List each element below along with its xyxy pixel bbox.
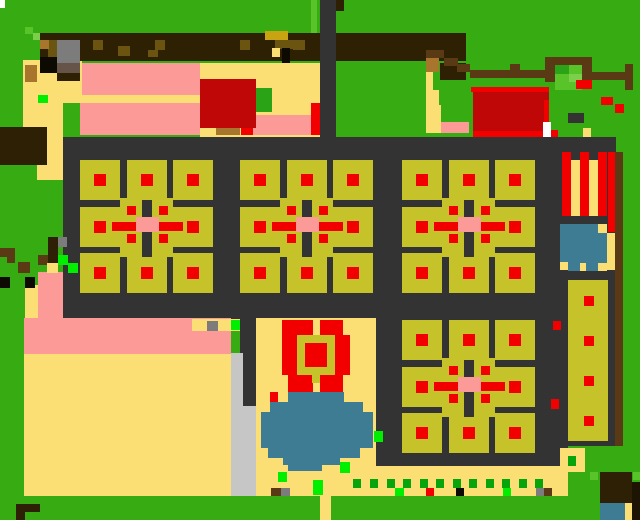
crop-dot xyxy=(535,479,543,488)
stone-block xyxy=(57,40,80,63)
market-stall-doors[interactable] xyxy=(584,416,594,426)
red-building-west-door[interactable] xyxy=(256,88,272,112)
grass-highlight-pale xyxy=(33,33,40,40)
sprout xyxy=(313,480,323,495)
tree-row-spot xyxy=(240,40,250,50)
pool-sand-edge xyxy=(560,262,568,270)
tree-row-spot xyxy=(293,40,305,50)
yard-red-dots xyxy=(601,97,613,105)
road[interactable] xyxy=(320,0,336,140)
tree-row-spot xyxy=(48,40,57,57)
crop-dot xyxy=(387,479,395,488)
road-red-marker xyxy=(553,321,561,330)
plot-cluster-4-center-dot xyxy=(481,394,490,403)
tree-branch-shadow xyxy=(0,277,10,288)
plot-cluster-2-door[interactable] xyxy=(347,174,359,186)
pool[interactable] xyxy=(568,263,580,271)
plot-cluster-2-center-path[interactable] xyxy=(302,232,312,257)
plot-cluster-3-door[interactable] xyxy=(416,221,428,233)
plot-cluster-3-door[interactable] xyxy=(509,174,521,186)
sprout xyxy=(58,255,68,265)
tree-row-sand-pixel xyxy=(272,48,280,57)
pool-sand-edge xyxy=(580,263,586,271)
plot-cluster-4-center-path[interactable] xyxy=(464,392,474,417)
awning-red-stripe[interactable] xyxy=(580,152,589,216)
plot-cluster-4-center-path[interactable] xyxy=(464,360,474,377)
plot-cluster-3-center-dash xyxy=(481,222,505,231)
red-building-trim xyxy=(241,128,253,135)
plot-cluster-2-door[interactable] xyxy=(301,174,313,186)
crop-dot xyxy=(453,479,461,488)
fence xyxy=(545,65,555,82)
sand-terrace xyxy=(426,90,439,105)
yard-red-dots xyxy=(615,104,624,113)
plot-cluster-4-door[interactable] xyxy=(416,381,428,393)
plot-cluster-1-door[interactable] xyxy=(141,267,153,279)
red-building-west[interactable] xyxy=(200,79,256,128)
tree-branch xyxy=(18,262,30,273)
pool[interactable] xyxy=(586,263,598,271)
corner-pixel xyxy=(0,0,5,8)
sprout xyxy=(68,263,78,273)
crop-dot xyxy=(436,479,444,488)
plot-cluster-1-center-path[interactable] xyxy=(142,200,152,217)
red-building-east[interactable] xyxy=(473,88,549,133)
plot-cluster-2-door[interactable] xyxy=(254,267,266,279)
shrine-ring[interactable] xyxy=(270,392,278,402)
dock-water xyxy=(600,503,625,520)
crop-dot xyxy=(502,479,510,488)
tree-row xyxy=(336,0,344,11)
plot-cluster-1-center-dot xyxy=(159,206,168,215)
wood-structure-dark xyxy=(632,482,640,520)
crop-dot xyxy=(370,479,378,488)
plot-cluster-2-door[interactable] xyxy=(301,267,313,279)
plot-cluster-4-center-pad xyxy=(458,377,481,392)
plot-cluster-3-center-pad xyxy=(458,217,481,232)
plot-cluster-1-center-dot xyxy=(127,234,136,243)
plot-cluster-1-center-pad xyxy=(136,217,159,232)
plot-cluster-3-door[interactable] xyxy=(463,267,475,279)
wood-structure xyxy=(0,127,47,165)
sand-terrace xyxy=(426,105,441,133)
tree-trunk xyxy=(48,237,58,263)
plot-cluster-3-center-dot xyxy=(449,206,458,215)
shrine-ring[interactable] xyxy=(320,320,343,335)
fence xyxy=(625,64,633,90)
boardwalk[interactable] xyxy=(615,152,623,446)
plot-cluster-1-door[interactable] xyxy=(141,174,153,186)
crop-dot xyxy=(469,479,477,488)
fence xyxy=(470,70,545,78)
plot-cluster-4-center-dash xyxy=(434,382,458,391)
plot-cluster-1-center-path[interactable] xyxy=(142,232,152,257)
market-stall-doors[interactable] xyxy=(584,336,594,346)
wood-structure xyxy=(16,512,25,520)
tree-row-shadow xyxy=(40,57,57,73)
sprout xyxy=(340,462,350,473)
pink-plaza xyxy=(38,272,63,318)
plot-cluster-2-center-dot xyxy=(287,234,296,243)
awning-red-stripe[interactable] xyxy=(598,152,607,216)
plaza-gray-pixel xyxy=(536,488,544,496)
yard-gray-slab xyxy=(568,113,584,123)
crop-dot xyxy=(420,479,428,488)
plot-cluster-2-center-dash xyxy=(319,222,343,231)
plot-cluster-4-door[interactable] xyxy=(416,334,428,346)
crop-dot xyxy=(353,479,361,488)
plot-cluster-4-center-dot xyxy=(449,394,458,403)
shrine-ring[interactable] xyxy=(320,375,343,392)
dirt-bits xyxy=(25,65,37,82)
plot-cluster-1-center-dash xyxy=(112,222,136,231)
stone-path[interactable] xyxy=(243,406,256,496)
pond[interactable] xyxy=(288,392,344,402)
pen-red-crate[interactable] xyxy=(576,80,592,89)
red-building-trim xyxy=(311,103,320,135)
fence xyxy=(444,58,458,66)
tree-row-spot xyxy=(148,50,158,57)
pond[interactable] xyxy=(261,412,373,448)
sprout-upper xyxy=(38,95,48,103)
yard-sand-pixel xyxy=(583,128,591,137)
plot-cluster-4-center-dash xyxy=(481,382,505,391)
pool-sand-edge xyxy=(607,233,615,270)
branch-sand-pixel xyxy=(47,263,58,273)
plot-cluster-3-center-path[interactable] xyxy=(464,232,474,257)
red-building-trim xyxy=(544,100,549,122)
tree-row-gold xyxy=(265,31,288,40)
awning-yellow-stripe[interactable] xyxy=(589,160,598,216)
plot-cluster-2-center-dot xyxy=(319,234,328,243)
plot-cluster-2-center-pad xyxy=(296,217,319,232)
pond[interactable] xyxy=(283,458,340,465)
plot-cluster-2-door[interactable] xyxy=(347,221,359,233)
plot-cluster-4-door[interactable] xyxy=(416,427,428,439)
fence xyxy=(457,64,470,72)
fence xyxy=(582,65,592,80)
plaza-gray-pixel xyxy=(207,321,218,331)
pink-terrace xyxy=(82,63,200,95)
plot-cluster-2-center-dot xyxy=(287,206,296,215)
sprout xyxy=(231,320,240,330)
tree-branch-shadow xyxy=(25,277,35,288)
crop-dot xyxy=(403,479,411,488)
plot-cluster-2-door[interactable] xyxy=(254,221,266,233)
ground-red-pixel xyxy=(426,488,434,496)
plot-cluster-2-center-dash xyxy=(272,222,296,231)
plot-cluster-2-door[interactable] xyxy=(347,267,359,279)
plot-cluster-1-center-dash xyxy=(159,222,183,231)
plot-cluster-1-center-dot xyxy=(127,206,136,215)
fence xyxy=(510,64,520,72)
plot-cluster-1-door[interactable] xyxy=(187,221,199,233)
tree-row-spot xyxy=(118,46,130,56)
plot-cluster-1-door[interactable] xyxy=(94,267,106,279)
wood-structure xyxy=(600,472,632,503)
grass-highlight xyxy=(25,27,33,34)
fence xyxy=(545,57,592,65)
tree-row-shadow xyxy=(282,48,290,63)
plot-cluster-3-center-dot xyxy=(449,234,458,243)
dirt-bits xyxy=(40,40,49,49)
crop-dot xyxy=(486,479,494,488)
awning-red-stripe[interactable] xyxy=(562,152,571,216)
plot-cluster-1-door[interactable] xyxy=(187,174,199,186)
shrine-ring[interactable] xyxy=(288,375,313,392)
pond[interactable] xyxy=(270,402,363,412)
pink-terrace xyxy=(441,122,469,133)
plot-cluster-4-door[interactable] xyxy=(463,334,475,346)
plot-cluster-4-center-dot xyxy=(449,366,458,375)
plot-cluster-2-center-dot xyxy=(319,206,328,215)
sprout xyxy=(374,431,383,442)
pink-terrace xyxy=(80,103,200,135)
ground-black-pixel xyxy=(456,488,464,496)
plot-cluster-3-door[interactable] xyxy=(463,174,475,186)
sand-terrace xyxy=(426,72,433,90)
pool-sand-edge xyxy=(598,263,607,271)
ground-brown-pixel xyxy=(544,488,552,496)
sand-terrace xyxy=(23,94,200,103)
market-stall-doors[interactable] xyxy=(584,376,594,386)
red-building-trim xyxy=(471,87,549,92)
dirt-bits xyxy=(426,57,439,72)
plot-cluster-3-door[interactable] xyxy=(416,267,428,279)
sand-path-gap xyxy=(320,496,331,520)
awning-yellow-stripe[interactable] xyxy=(571,160,580,216)
crop-dot xyxy=(568,456,576,466)
plot-cluster-3-center-dot xyxy=(481,234,490,243)
plot-cluster-3-center-dash xyxy=(434,222,458,231)
plot-cluster-4-door[interactable] xyxy=(509,427,521,439)
pond[interactable] xyxy=(268,448,360,458)
tree-row-spot xyxy=(93,40,103,50)
crop-dot xyxy=(519,479,527,488)
plot-cluster-3-door[interactable] xyxy=(509,221,521,233)
plot-cluster-4-door[interactable] xyxy=(463,427,475,439)
plot-cluster-4-center-dot xyxy=(481,366,490,375)
market-stall-doors[interactable] xyxy=(584,296,594,306)
sand-terrace xyxy=(200,63,256,79)
plot-cluster-4-door[interactable] xyxy=(509,334,521,346)
sand-plaza xyxy=(24,354,231,496)
fence xyxy=(426,50,444,58)
grass-highlight xyxy=(590,472,598,480)
sprout xyxy=(503,488,511,496)
plot-cluster-4-door[interactable] xyxy=(509,381,521,393)
tree-row xyxy=(57,73,80,81)
plot-cluster-1-door[interactable] xyxy=(94,221,106,233)
grass-highlight xyxy=(633,472,640,480)
pink-terrace xyxy=(253,115,311,135)
bush-pen-dark xyxy=(555,65,569,74)
wood-structure xyxy=(16,504,40,512)
grass-highlight xyxy=(311,0,317,33)
sprout xyxy=(278,472,287,482)
fence xyxy=(592,72,625,80)
plot-cluster-1-door[interactable] xyxy=(187,267,199,279)
plot-cluster-3-door[interactable] xyxy=(509,267,521,279)
shrine-inner-ring[interactable] xyxy=(312,375,320,383)
stone-path[interactable] xyxy=(231,353,243,496)
stone-base xyxy=(57,63,80,73)
plot-cluster-3-center-path[interactable] xyxy=(464,200,474,217)
pond[interactable] xyxy=(288,465,322,471)
tree-row-spot xyxy=(155,40,165,50)
plot-cluster-2-center-path[interactable] xyxy=(302,200,312,217)
pool-sand-edge xyxy=(598,224,607,233)
game-map[interactable] xyxy=(0,0,640,520)
sand-plaza xyxy=(25,285,38,318)
dirt-bits xyxy=(216,128,240,135)
shrine-core[interactable] xyxy=(305,343,327,367)
tree-branch xyxy=(7,256,15,263)
plot-cluster-1-center-dot xyxy=(159,234,168,243)
plot-cluster-2-door[interactable] xyxy=(254,174,266,186)
road-red-marker xyxy=(551,399,559,409)
shrine-ring[interactable] xyxy=(282,320,313,335)
plot-cluster-3-center-dot xyxy=(481,206,490,215)
plot-cluster-3-door[interactable] xyxy=(416,174,428,186)
plot-cluster-1-door[interactable] xyxy=(94,174,106,186)
tree-row xyxy=(336,33,466,61)
